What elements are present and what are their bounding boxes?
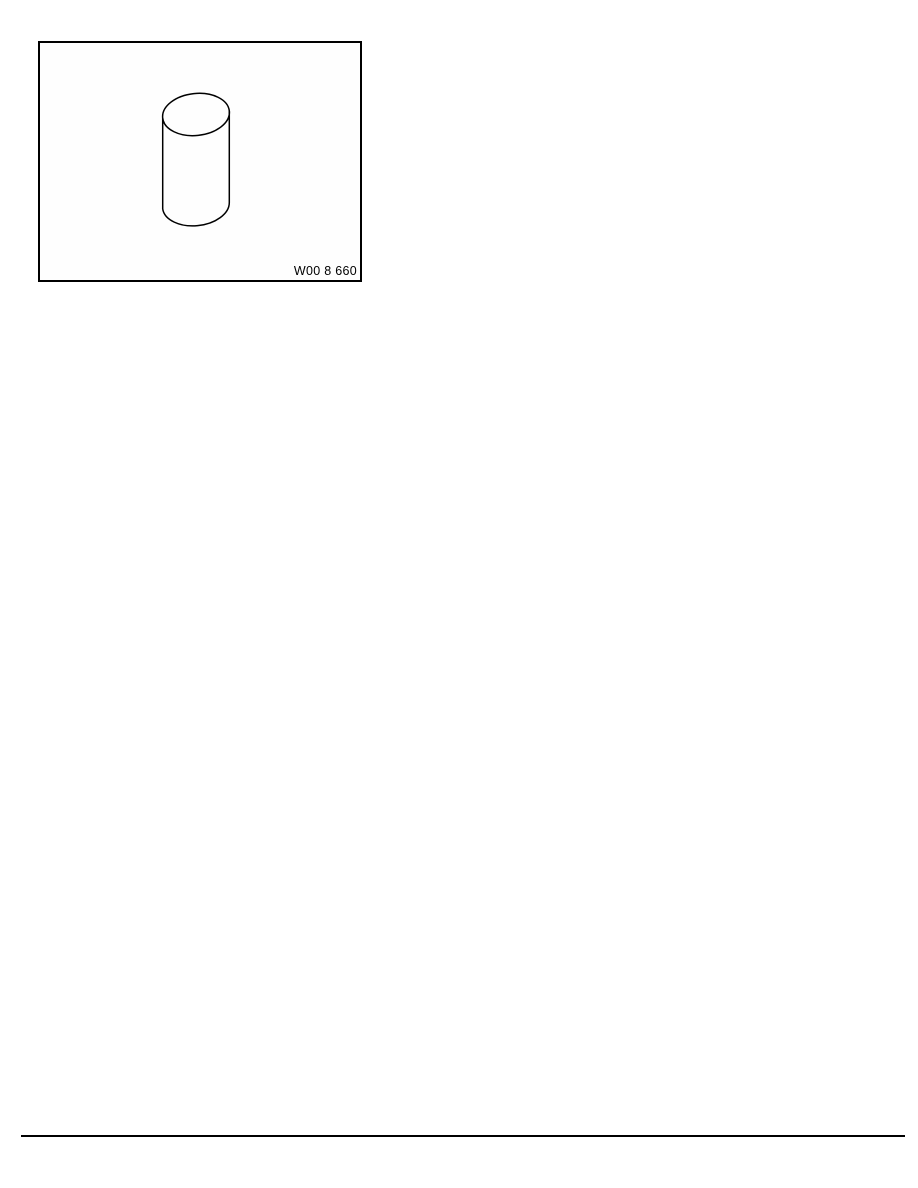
figure-box: W00 8 660 — [38, 41, 362, 282]
cylinder-top-ellipse — [160, 90, 231, 139]
cylinder-drawing-icon — [40, 43, 360, 280]
figure-label: W00 8 660 — [294, 264, 357, 278]
cylinder-bottom-arc — [163, 203, 230, 226]
footer-divider — [21, 1135, 905, 1137]
